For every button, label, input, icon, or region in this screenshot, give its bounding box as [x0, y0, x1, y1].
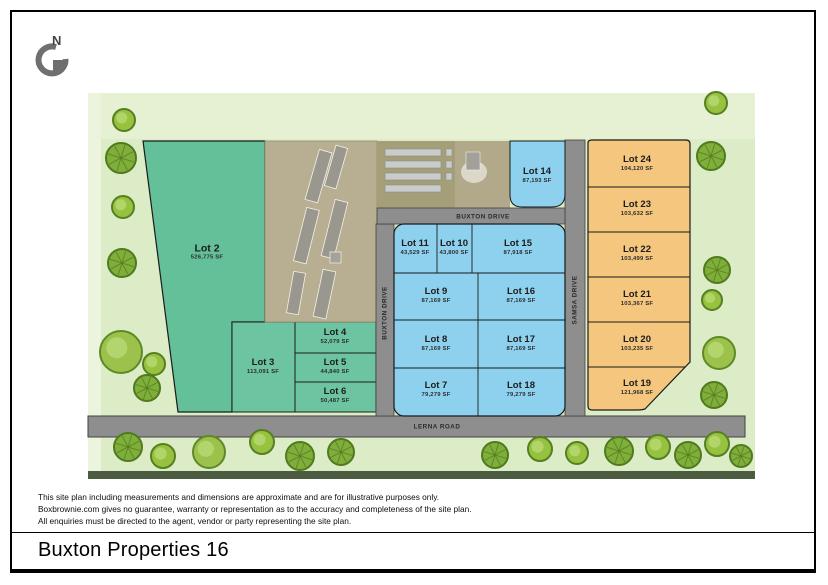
lot-24-name: Lot 24: [621, 155, 653, 166]
disclaimer-line-1: This site plan including measurements an…: [38, 492, 758, 504]
tree: [605, 437, 633, 465]
lot-18-label: Lot 18 79,279 SF: [507, 381, 536, 399]
lot-5-area: 44,840 SF: [321, 369, 350, 376]
north-label: N: [52, 33, 61, 48]
tree: [704, 257, 730, 283]
lot-10-area: 43,800 SF: [440, 250, 469, 257]
lot-19-name: Lot 19: [621, 379, 653, 390]
tree: [482, 442, 508, 468]
site-plan-page: N Lot 2 526,775 SF Lot 3 113,091 SF Lot …: [0, 0, 828, 585]
lot-9-area: 87,169 SF: [422, 298, 451, 305]
lot-8-label: Lot 8 87,169 SF: [422, 335, 451, 353]
aerial-photo-farm: [377, 141, 510, 208]
lot-14-label: Lot 14 87,193 SF: [523, 167, 552, 185]
lot-15-label: Lot 15 87,918 SF: [504, 239, 533, 257]
lot-21-name: Lot 21: [621, 290, 653, 301]
lot-23-label: Lot 23 103,632 SF: [621, 200, 653, 218]
lot-17-area: 87,169 SF: [507, 346, 536, 353]
lot-22-area: 103,499 SF: [621, 256, 653, 263]
tree: [108, 249, 136, 277]
lot-2-area: 526,775 SF: [191, 255, 223, 262]
disclaimer-text: This site plan including measurements an…: [38, 492, 758, 527]
tree: [286, 442, 314, 470]
lot-4-name: Lot 4: [321, 328, 350, 339]
lot-7-label: Lot 7 79,279 SF: [422, 381, 451, 399]
lot-20-name: Lot 20: [621, 335, 653, 346]
tree: [114, 433, 142, 461]
tree: [705, 92, 727, 114]
buxton-drive-vertical-label: BUXTON DRIVE: [382, 286, 389, 339]
disclaimer-line-3: All enquiries must be directed to the ag…: [38, 516, 758, 528]
lot-17-label: Lot 17 87,169 SF: [507, 335, 536, 353]
tree: [703, 337, 735, 369]
tree: [702, 290, 722, 310]
lot-19-area: 121,968 SF: [621, 390, 653, 397]
orange-lot-block: [588, 140, 690, 410]
tree: [193, 436, 225, 468]
disclaimer-line-2: Boxbrownie.com gives no guarantee, warra…: [38, 504, 758, 516]
lot-11-name: Lot 11: [401, 239, 430, 250]
tree: [250, 430, 274, 454]
lot-22-label: Lot 22 103,499 SF: [621, 245, 653, 263]
lot-8-name: Lot 8: [422, 335, 451, 346]
lot-4-area: 52,079 SF: [321, 339, 350, 346]
lot-7-name: Lot 7: [422, 381, 451, 392]
tree: [100, 331, 142, 373]
tree: [697, 142, 725, 170]
lot-24-area: 104,120 SF: [621, 166, 653, 173]
tree: [151, 444, 175, 468]
lot-6-label: Lot 6 50,487 SF: [321, 387, 350, 405]
lot-3-area: 113,091 SF: [247, 369, 279, 376]
map-background-top: [88, 93, 755, 139]
lot-21-area: 103,367 SF: [621, 301, 653, 308]
lot-14-name: Lot 14: [523, 167, 552, 178]
samsa-drive-label: SAMSA DRIVE: [572, 275, 579, 324]
tree: [705, 432, 729, 456]
lot-14-area: 87,193 SF: [523, 178, 552, 185]
lot-2-label: Lot 2 526,775 SF: [191, 243, 223, 262]
lot-3-name: Lot 3: [247, 358, 279, 369]
lot-19-label: Lot 19 121,968 SF: [621, 379, 653, 397]
buxton-drive-top-label: BUXTON DRIVE: [456, 214, 509, 221]
lot-10-name: Lot 10: [440, 239, 469, 250]
lot-3-label: Lot 3 113,091 SF: [247, 358, 279, 376]
lot-22-name: Lot 22: [621, 245, 653, 256]
lot-20-label: Lot 20 103,235 SF: [621, 335, 653, 353]
lot-23-area: 103,632 SF: [621, 211, 653, 218]
tree: [113, 109, 135, 131]
tree: [143, 353, 165, 375]
lot-15-name: Lot 15: [504, 239, 533, 250]
map-bottom-edge: [88, 471, 755, 479]
lot-9-label: Lot 9 87,169 SF: [422, 287, 451, 305]
lot-10-label: Lot 10 43,800 SF: [440, 239, 469, 257]
tree: [566, 442, 588, 464]
lot-24-label: Lot 24 104,120 SF: [621, 155, 653, 173]
tree: [328, 439, 354, 465]
lot-11-area: 43,529 SF: [401, 250, 430, 257]
lot-8-area: 87,169 SF: [422, 346, 451, 353]
lot-2-name: Lot 2: [191, 243, 223, 255]
lot-5-name: Lot 5: [321, 358, 350, 369]
tree: [701, 382, 727, 408]
lot-5-label: Lot 5 44,840 SF: [321, 358, 350, 376]
lot-16-name: Lot 16: [507, 287, 536, 298]
title-divider-line: [12, 532, 816, 533]
north-compass-icon: [39, 46, 66, 73]
lot-20-area: 103,235 SF: [621, 346, 653, 353]
lot-18-area: 79,279 SF: [507, 392, 536, 399]
lot-16-label: Lot 16 87,169 SF: [507, 287, 536, 305]
lot-23-name: Lot 23: [621, 200, 653, 211]
lot-7-area: 79,279 SF: [422, 392, 451, 399]
lot-6-area: 50,487 SF: [321, 398, 350, 405]
tree: [134, 375, 160, 401]
lot-21-label: Lot 21 103,367 SF: [621, 290, 653, 308]
lot-4-label: Lot 4 52,079 SF: [321, 328, 350, 346]
tree: [730, 445, 752, 467]
lot-15-area: 87,918 SF: [504, 250, 533, 257]
tree: [112, 196, 134, 218]
tree: [646, 435, 670, 459]
tree: [106, 143, 136, 173]
lot-18-name: Lot 18: [507, 381, 536, 392]
lot-6-name: Lot 6: [321, 387, 350, 398]
lerna-road-label: LERNA ROAD: [414, 424, 461, 431]
lot-16-area: 87,169 SF: [507, 298, 536, 305]
aerial-photo-apartments: [265, 141, 377, 322]
lot-17-name: Lot 17: [507, 335, 536, 346]
tree: [528, 437, 552, 461]
lot-11-label: Lot 11 43,529 SF: [401, 239, 430, 257]
lot-9-name: Lot 9: [422, 287, 451, 298]
plan-title: Buxton Properties 16: [38, 539, 229, 562]
tree: [675, 442, 701, 468]
